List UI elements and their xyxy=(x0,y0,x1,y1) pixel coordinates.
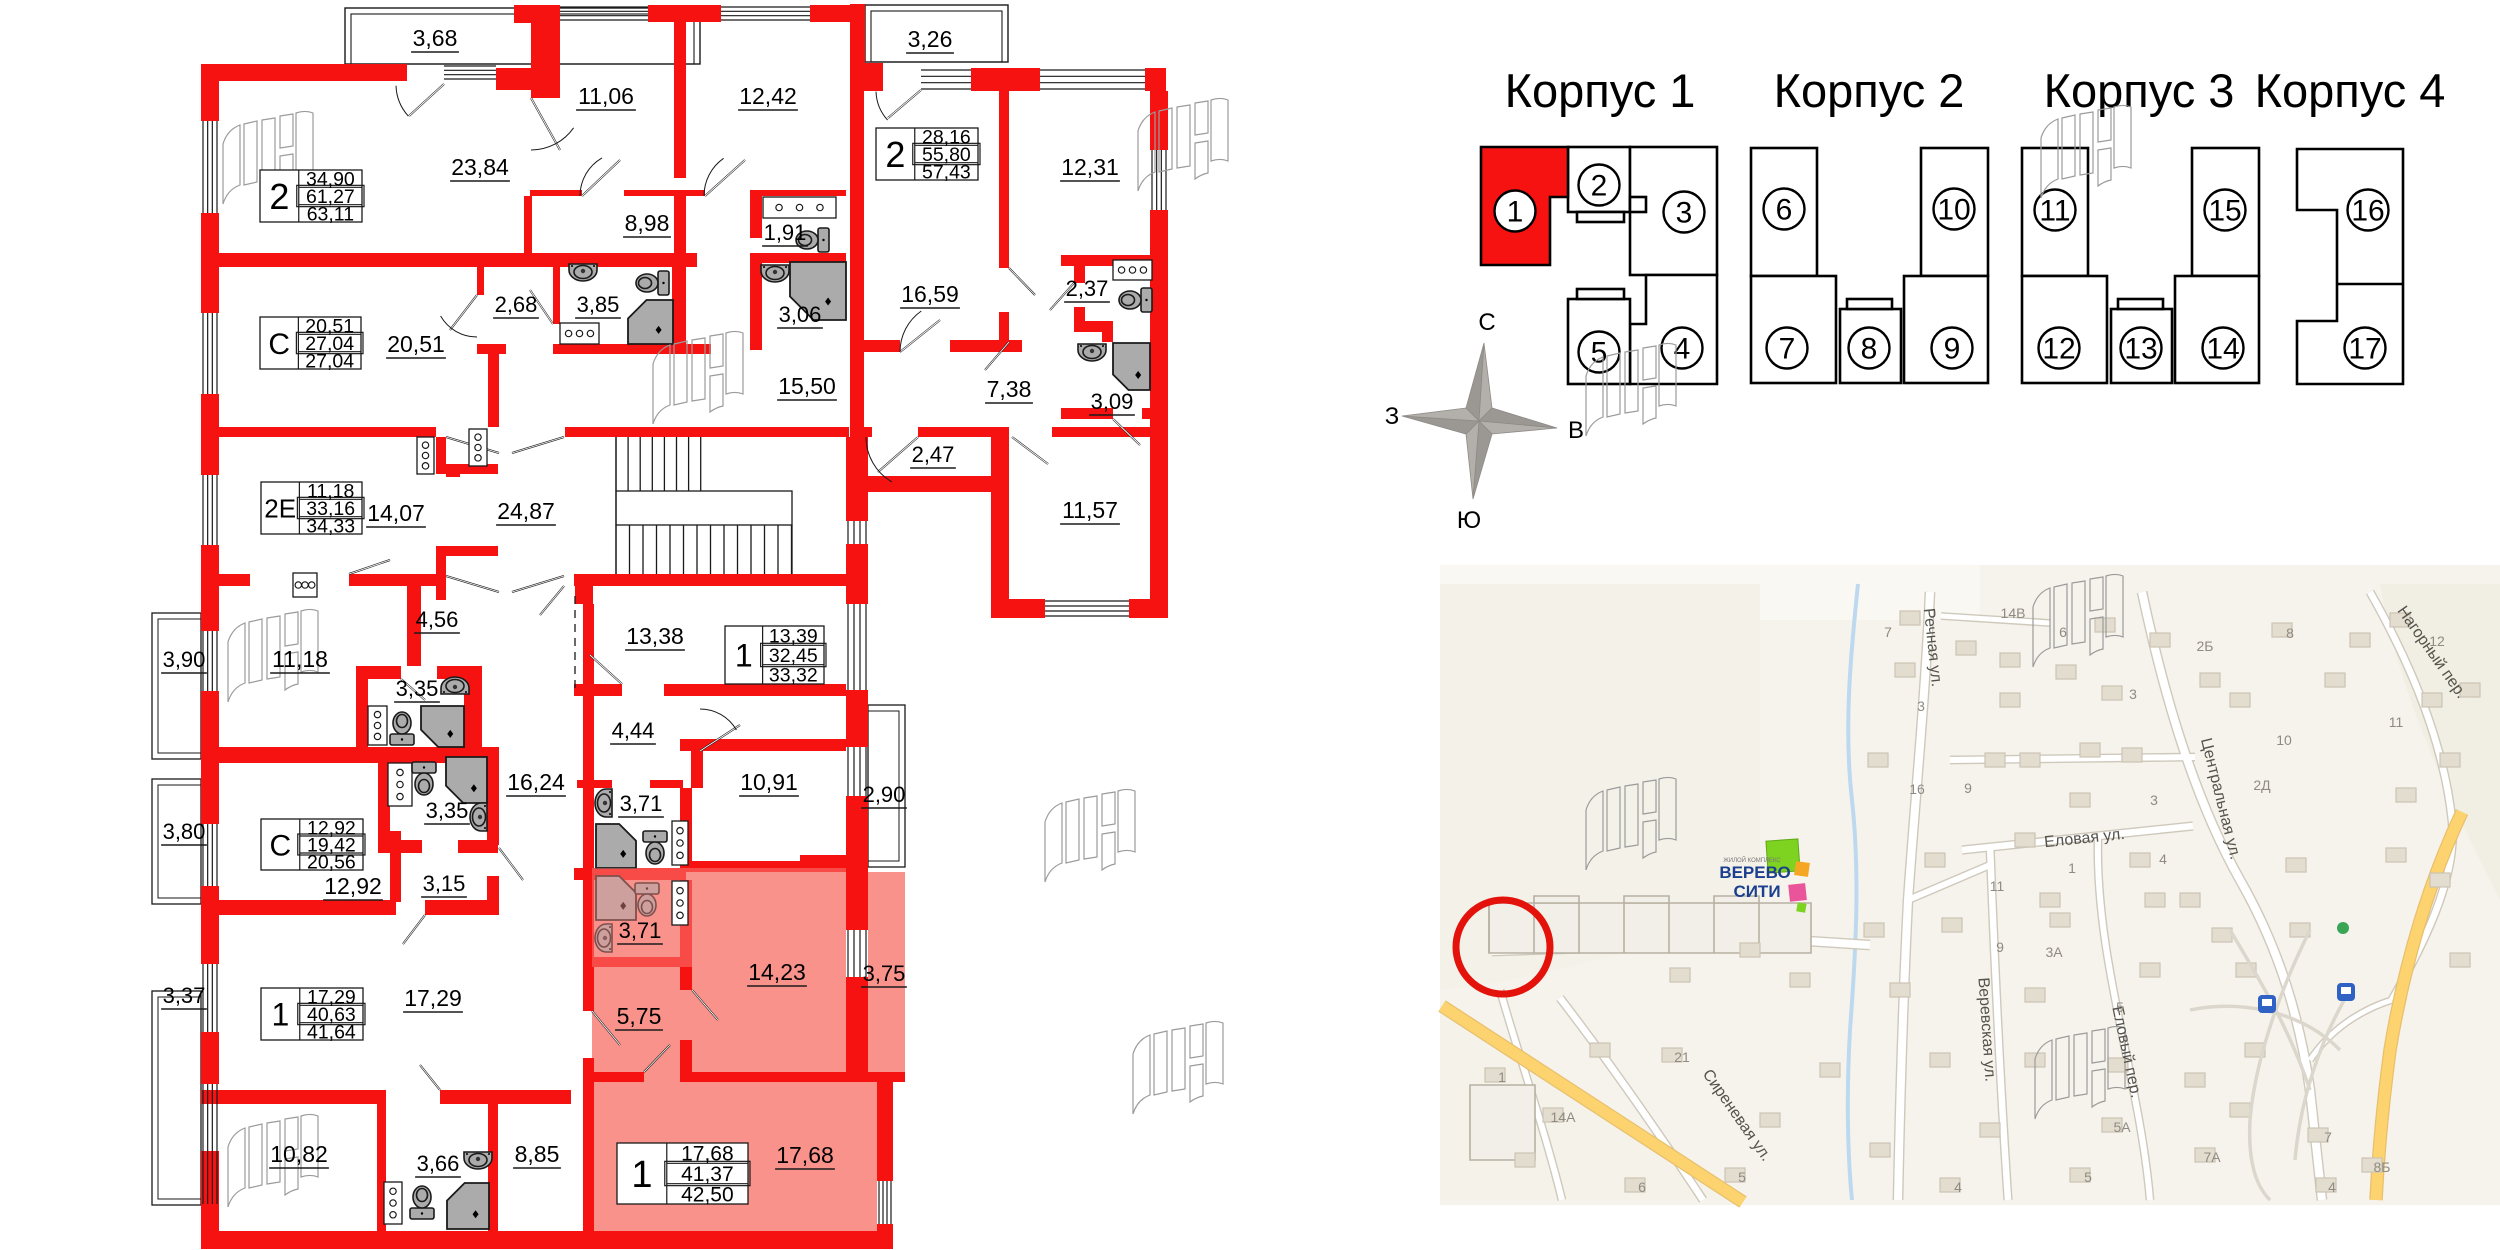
svg-text:2Д: 2Д xyxy=(2253,777,2271,793)
svg-text:10: 10 xyxy=(1937,194,1970,227)
svg-text:3: 3 xyxy=(1676,197,1693,230)
svg-text:42,50: 42,50 xyxy=(681,1183,734,1206)
svg-text:3,15: 3,15 xyxy=(423,871,466,896)
svg-text:1: 1 xyxy=(631,1154,652,1196)
svg-text:3: 3 xyxy=(2150,792,2158,808)
svg-text:В: В xyxy=(1568,417,1584,444)
svg-text:3,09: 3,09 xyxy=(1091,389,1134,414)
svg-text:1: 1 xyxy=(271,997,289,1033)
svg-text:9: 9 xyxy=(1996,939,2004,955)
svg-text:6: 6 xyxy=(2059,624,2067,640)
svg-text:14: 14 xyxy=(2206,333,2239,366)
svg-text:5: 5 xyxy=(2084,1169,2092,1185)
svg-text:1: 1 xyxy=(1507,196,1524,229)
svg-text:20,56: 20,56 xyxy=(307,852,356,874)
svg-text:13: 13 xyxy=(2124,333,2157,366)
svg-text:16: 16 xyxy=(1909,781,1925,797)
svg-text:5,75: 5,75 xyxy=(617,1003,662,1029)
svg-text:17,29: 17,29 xyxy=(404,985,462,1011)
svg-text:3,80: 3,80 xyxy=(163,819,206,844)
svg-text:3,90: 3,90 xyxy=(163,647,206,672)
svg-text:14В: 14В xyxy=(2001,605,2026,621)
svg-text:23,84: 23,84 xyxy=(451,154,509,180)
svg-text:8Б: 8Б xyxy=(2374,1159,2391,1175)
svg-text:3,68: 3,68 xyxy=(413,25,458,51)
svg-text:13,38: 13,38 xyxy=(626,623,684,649)
svg-text:57,43: 57,43 xyxy=(922,161,971,183)
svg-text:2Е: 2Е xyxy=(264,493,296,523)
svg-text:3: 3 xyxy=(2129,686,2137,702)
svg-text:3,71: 3,71 xyxy=(620,791,663,816)
svg-text:12: 12 xyxy=(2429,633,2445,649)
svg-text:3,26: 3,26 xyxy=(908,26,953,52)
svg-text:8,98: 8,98 xyxy=(625,210,670,236)
svg-text:24,87: 24,87 xyxy=(497,498,555,524)
svg-text:14,23: 14,23 xyxy=(748,959,806,985)
svg-text:6: 6 xyxy=(1776,194,1793,227)
svg-text:2: 2 xyxy=(1591,170,1608,203)
svg-text:12,31: 12,31 xyxy=(1061,154,1119,180)
svg-text:З: З xyxy=(1385,403,1400,430)
svg-text:6: 6 xyxy=(1638,1179,1646,1195)
svg-text:5: 5 xyxy=(2116,999,2124,1015)
svg-text:12,42: 12,42 xyxy=(739,83,797,109)
svg-text:12: 12 xyxy=(2042,333,2075,366)
svg-text:1: 1 xyxy=(735,638,753,674)
svg-text:ЖИЛОЙ КОМПЛЕКС: ЖИЛОЙ КОМПЛЕКС xyxy=(1723,856,1781,864)
svg-text:7А: 7А xyxy=(2203,1149,2221,1165)
svg-text:14,07: 14,07 xyxy=(367,500,425,526)
svg-text:16: 16 xyxy=(2351,195,2384,228)
svg-text:7: 7 xyxy=(2324,1129,2332,1145)
svg-text:11,06: 11,06 xyxy=(578,83,634,109)
svg-text:11: 11 xyxy=(1990,878,2005,894)
svg-text:11,18: 11,18 xyxy=(272,646,328,672)
svg-text:34,33: 34,33 xyxy=(306,515,355,537)
svg-text:4,56: 4,56 xyxy=(416,607,459,632)
svg-text:4,44: 4,44 xyxy=(612,718,655,743)
svg-text:5: 5 xyxy=(1591,337,1608,370)
svg-text:11: 11 xyxy=(2039,195,2070,228)
svg-text:5А: 5А xyxy=(2113,1119,2131,1135)
svg-text:4: 4 xyxy=(2159,851,2167,867)
svg-text:ВЕРЕВО: ВЕРЕВО xyxy=(1719,863,1790,882)
svg-text:14А: 14А xyxy=(1551,1109,1577,1125)
svg-text:Корпус 1: Корпус 1 xyxy=(1505,64,1696,117)
svg-text:21: 21 xyxy=(1674,1049,1690,1065)
svg-text:7,38: 7,38 xyxy=(987,376,1032,402)
svg-text:2,47: 2,47 xyxy=(912,442,955,467)
svg-text:2,90: 2,90 xyxy=(863,782,906,807)
svg-text:2,68: 2,68 xyxy=(495,292,538,317)
svg-text:3,71: 3,71 xyxy=(619,918,662,943)
svg-text:Корпус 3: Корпус 3 xyxy=(2044,64,2235,117)
svg-text:С: С xyxy=(270,829,292,862)
svg-text:4: 4 xyxy=(1954,1179,1962,1195)
svg-text:15: 15 xyxy=(2208,195,2241,228)
svg-text:Корпус 4: Корпус 4 xyxy=(2255,64,2446,117)
svg-text:16,24: 16,24 xyxy=(507,769,565,795)
svg-text:10,82: 10,82 xyxy=(270,1141,328,1167)
svg-text:41,64: 41,64 xyxy=(307,1021,356,1043)
svg-text:2: 2 xyxy=(885,134,905,175)
svg-text:5: 5 xyxy=(1738,1169,1746,1185)
svg-text:3,75: 3,75 xyxy=(863,961,906,986)
svg-text:3,06: 3,06 xyxy=(779,302,822,327)
svg-text:2: 2 xyxy=(269,176,289,217)
svg-text:11: 11 xyxy=(2389,714,2404,730)
svg-text:8,85: 8,85 xyxy=(515,1141,560,1167)
svg-text:33,32: 33,32 xyxy=(769,664,818,686)
svg-text:3А: 3А xyxy=(2045,944,2063,960)
svg-text:Ю: Ю xyxy=(1457,507,1481,534)
svg-text:11,57: 11,57 xyxy=(1062,497,1118,523)
svg-text:8: 8 xyxy=(2286,625,2294,641)
svg-text:3,66: 3,66 xyxy=(417,1151,460,1176)
svg-text:7: 7 xyxy=(1779,333,1796,366)
svg-text:3,37: 3,37 xyxy=(163,983,206,1008)
svg-text:3,85: 3,85 xyxy=(577,292,620,317)
svg-text:СИТИ: СИТИ xyxy=(1733,882,1780,901)
svg-text:С: С xyxy=(268,328,290,361)
svg-text:17,68: 17,68 xyxy=(776,1142,834,1168)
svg-text:2Б: 2Б xyxy=(2197,638,2214,654)
svg-text:1,91: 1,91 xyxy=(764,220,807,245)
svg-text:17: 17 xyxy=(2348,333,2381,366)
svg-text:15,50: 15,50 xyxy=(778,373,836,399)
svg-text:3,35: 3,35 xyxy=(426,798,469,823)
svg-text:3: 3 xyxy=(1917,698,1925,714)
svg-text:7: 7 xyxy=(1884,624,1892,640)
svg-text:9: 9 xyxy=(1944,333,1961,366)
svg-text:Корпус 2: Корпус 2 xyxy=(1774,64,1965,117)
svg-text:3,35: 3,35 xyxy=(396,676,439,701)
svg-text:27,04: 27,04 xyxy=(305,350,354,372)
svg-text:12,92: 12,92 xyxy=(324,873,382,899)
svg-text:9: 9 xyxy=(1964,780,1972,796)
svg-text:1: 1 xyxy=(2068,860,2076,876)
svg-text:10,91: 10,91 xyxy=(740,769,798,795)
svg-text:1: 1 xyxy=(1498,1069,1506,1085)
svg-text:63,11: 63,11 xyxy=(307,203,354,225)
svg-text:16,59: 16,59 xyxy=(901,281,959,307)
svg-text:20,51: 20,51 xyxy=(387,331,445,357)
svg-text:10: 10 xyxy=(2276,732,2292,748)
svg-text:8: 8 xyxy=(1861,333,1878,366)
svg-text:2,37: 2,37 xyxy=(1066,276,1109,301)
svg-text:С: С xyxy=(1478,309,1495,336)
svg-text:4: 4 xyxy=(2328,1179,2336,1195)
